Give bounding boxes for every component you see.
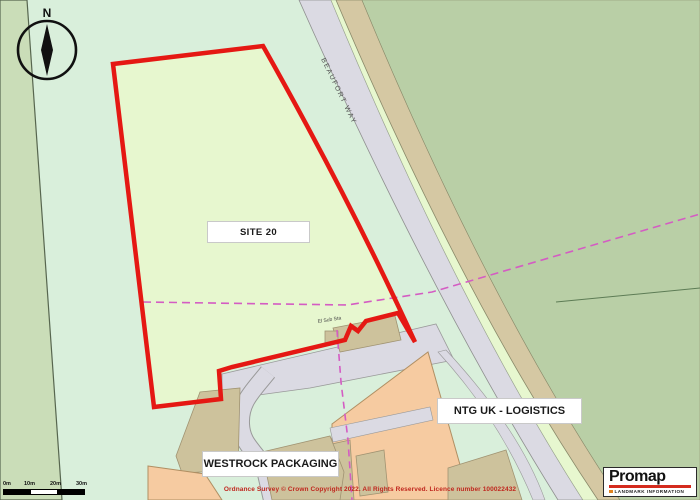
- scale-bar-segments: [3, 489, 85, 495]
- promap-logo-wordmark: Promap: [609, 469, 691, 485]
- site-plan-map: BEAUFORT WAY El Sub Sta N SITE 20 NTG UK…: [0, 0, 700, 500]
- scale-tick-0: 0m: [3, 481, 11, 487]
- promap-logo: Promap LANDMARK INFORMATION: [603, 467, 697, 497]
- scale-bar-ticks: 0m 10m 20m 30m: [3, 481, 93, 488]
- ntg-uk-logistics-label: NTG UK - LOGISTICS: [437, 398, 582, 424]
- scale-segment-white: [31, 490, 58, 494]
- copyright-text: Ordnance Survey © Crown Copyright 2022. …: [150, 486, 590, 493]
- scale-segment-black: [4, 490, 31, 494]
- promap-logo-redbar: [609, 485, 691, 488]
- westrock-packaging-label: WESTROCK PACKAGING: [202, 451, 339, 477]
- scale-segment-black: [57, 490, 84, 494]
- compass-north-label: N: [43, 6, 52, 20]
- scale-tick-20: 20m: [50, 481, 61, 487]
- landmark-subtitle-text: LANDMARK INFORMATION: [615, 489, 685, 494]
- scale-tick-30: 30m: [76, 481, 87, 487]
- promap-logo-subtitle: LANDMARK INFORMATION: [609, 489, 691, 494]
- landmark-bullet-icon: [609, 490, 613, 494]
- scale-tick-10: 10m: [24, 481, 35, 487]
- map-canvas: BEAUFORT WAY El Sub Sta N: [0, 0, 700, 500]
- scale-bar: 0m 10m 20m 30m: [3, 481, 93, 497]
- site-20-label: SITE 20: [207, 221, 310, 243]
